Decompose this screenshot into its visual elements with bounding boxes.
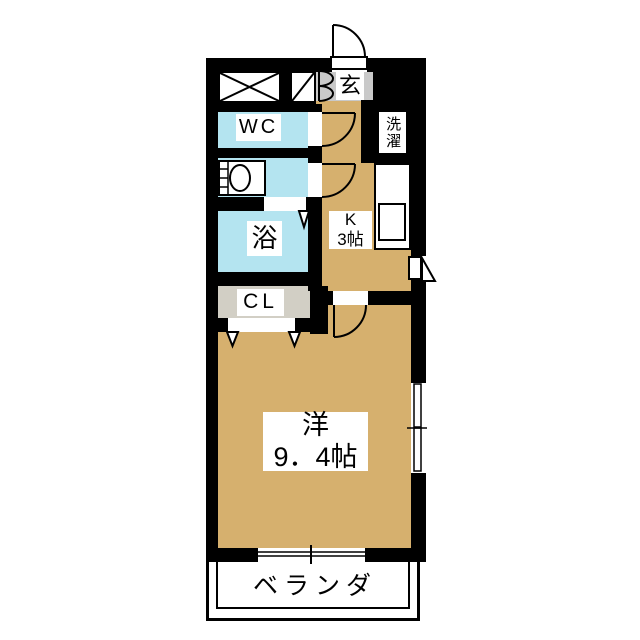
toilet-label: WC	[236, 114, 281, 141]
symbol-overlay	[0, 0, 640, 640]
pipe-space-diagonal-icon	[292, 73, 314, 101]
washbasin-icon	[219, 161, 250, 195]
exterior-door-swing-icon	[422, 258, 435, 281]
sliding-door-icon	[258, 545, 365, 564]
toilet-door-swing-icon	[322, 113, 355, 146]
closet-folding-door-icons	[227, 332, 300, 346]
shoe-cabinet-icon	[319, 71, 333, 101]
entrance-door-swing-icon	[333, 25, 365, 57]
mainroom-label: 洋 9．4帖	[263, 412, 368, 471]
mainroom-door-swing-icon	[334, 305, 366, 337]
washroom-door-swing-icon	[322, 164, 355, 197]
elevator-cross-icon	[220, 73, 279, 101]
entrance-label: 玄	[336, 72, 364, 100]
bath-folding-door-icon	[299, 211, 309, 227]
window-icon	[407, 384, 427, 471]
kitchen-label-letter: K	[345, 210, 356, 230]
laundry-label: 洗濯	[380, 113, 405, 153]
closet-label: CL	[237, 289, 284, 316]
veranda-label: ベランダ	[240, 570, 390, 602]
floorplan-canvas: 玄 WC 洗濯 浴 CL K 3帖 洋 9．4帖 ベランダ	[0, 0, 640, 640]
mainroom-label-size: 9．4帖	[273, 442, 357, 473]
bath-label: 浴	[247, 221, 282, 256]
mainroom-label-letter: 洋	[302, 410, 329, 441]
kitchen-label: K 3帖	[329, 211, 372, 249]
kitchen-label-size: 3帖	[337, 230, 363, 250]
